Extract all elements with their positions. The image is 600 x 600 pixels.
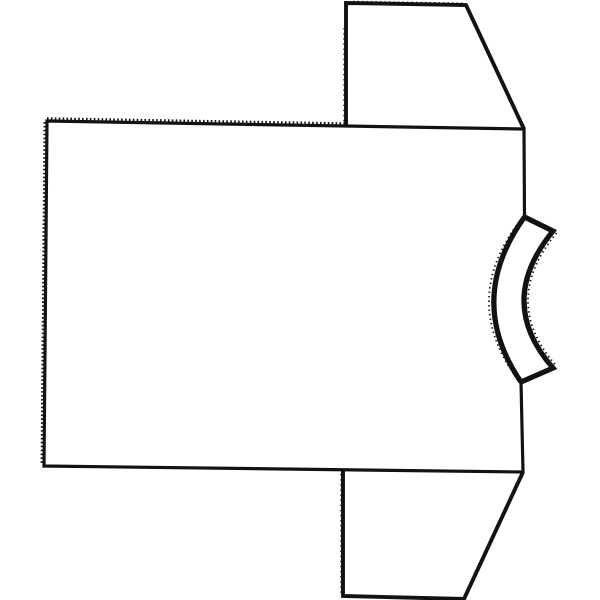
drawing-svg bbox=[0, 0, 600, 600]
shirt-body-outline bbox=[44, 121, 553, 472]
neckline-seam-arc bbox=[494, 217, 525, 382]
tshirt-pattern-drawing bbox=[0, 0, 600, 600]
bottom-sleeve-outline bbox=[343, 471, 523, 599]
top-sleeve-outline bbox=[346, 3, 524, 129]
collar-inner-rough-texture bbox=[528, 233, 557, 366]
